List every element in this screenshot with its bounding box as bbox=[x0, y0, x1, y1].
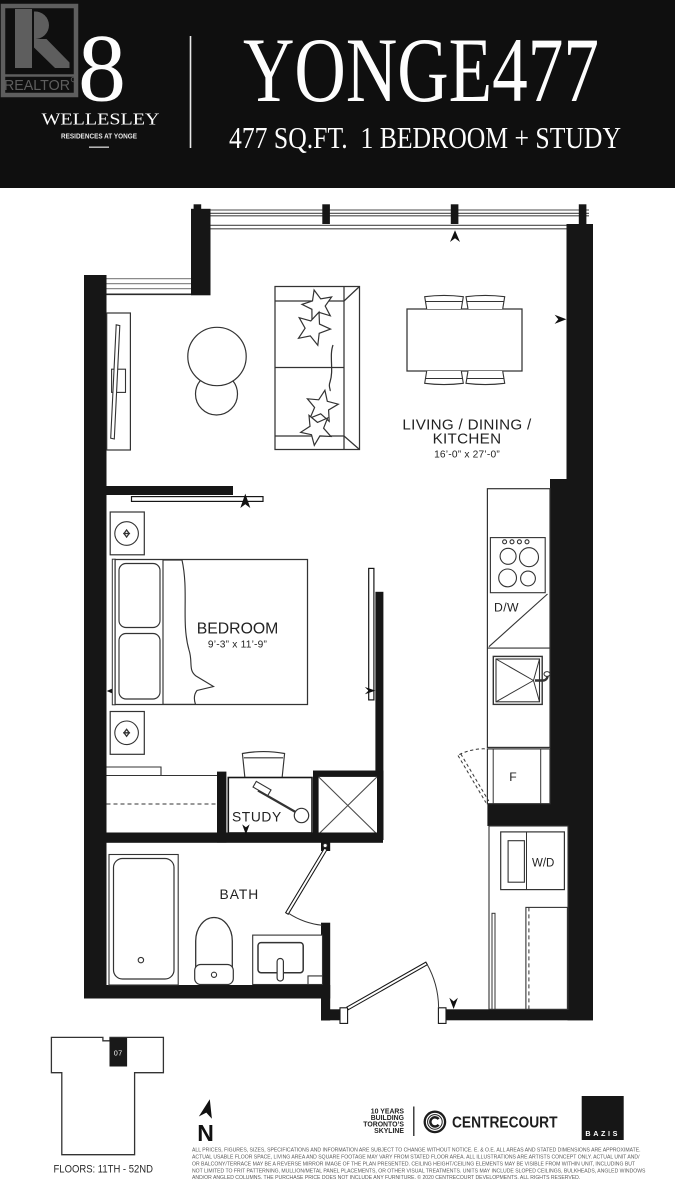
svg-text:FLOORS: 11TH - 52ND: FLOORS: 11TH - 52ND bbox=[54, 1164, 154, 1176]
svg-text:F: F bbox=[509, 770, 516, 784]
svg-text:SKYLINE: SKYLINE bbox=[374, 1128, 404, 1135]
svg-text:477 SQ.FT. 1 BEDROOM + STUDY: 477 SQ.FT. 1 BEDROOM + STUDY bbox=[229, 120, 621, 155]
svg-text:OR BALCONY/TERRACE MAY BE A RE: OR BALCONY/TERRACE MAY BE A REVERSE MIRR… bbox=[192, 1162, 635, 1168]
svg-text:16’-0” x 27’-0”: 16’-0” x 27’-0” bbox=[434, 450, 500, 461]
svg-text:YONGE477: YONGE477 bbox=[243, 19, 599, 121]
svg-text:BAZIS: BAZIS bbox=[585, 1129, 620, 1138]
svg-text:WELLESLEY: WELLESLEY bbox=[42, 110, 160, 129]
svg-text:STUDY: STUDY bbox=[232, 810, 282, 825]
svg-text:8: 8 bbox=[78, 15, 126, 122]
svg-text:CENTRECOURT: CENTRECOURT bbox=[452, 1114, 558, 1131]
svg-text:9’-3” x 11’-9”: 9’-3” x 11’-9” bbox=[208, 640, 268, 651]
svg-text:NOT LIMITED TO FRIT PATTERNING: NOT LIMITED TO FRIT PATTERNING, MULLION/… bbox=[192, 1169, 646, 1175]
svg-text:D/W: D/W bbox=[494, 601, 519, 615]
svg-text:REALTOR: REALTOR bbox=[4, 78, 70, 94]
svg-text:BEDROOM: BEDROOM bbox=[197, 621, 279, 638]
svg-text:W/D: W/D bbox=[532, 858, 554, 870]
svg-text:AND/OR ANGLED COLUMNS. THE PUR: AND/OR ANGLED COLUMNS. THE PURCHASE PRIC… bbox=[192, 1174, 580, 1181]
svg-text:07: 07 bbox=[114, 1050, 123, 1057]
svg-text:RESIDENCES AT YONGE: RESIDENCES AT YONGE bbox=[61, 132, 137, 141]
svg-text:BATH: BATH bbox=[220, 887, 260, 902]
svg-text:KITCHEN: KITCHEN bbox=[433, 430, 502, 447]
svg-text:ACTUAL USABLE FLOOR SPACE, LIV: ACTUAL USABLE FLOOR SPACE, LIVING AREA A… bbox=[192, 1155, 640, 1161]
svg-text:ALL PRICES, FIGURES, SIZES, SP: ALL PRICES, FIGURES, SIZES, SPECIFICATIO… bbox=[192, 1148, 641, 1154]
svg-text:N: N bbox=[197, 1120, 214, 1146]
